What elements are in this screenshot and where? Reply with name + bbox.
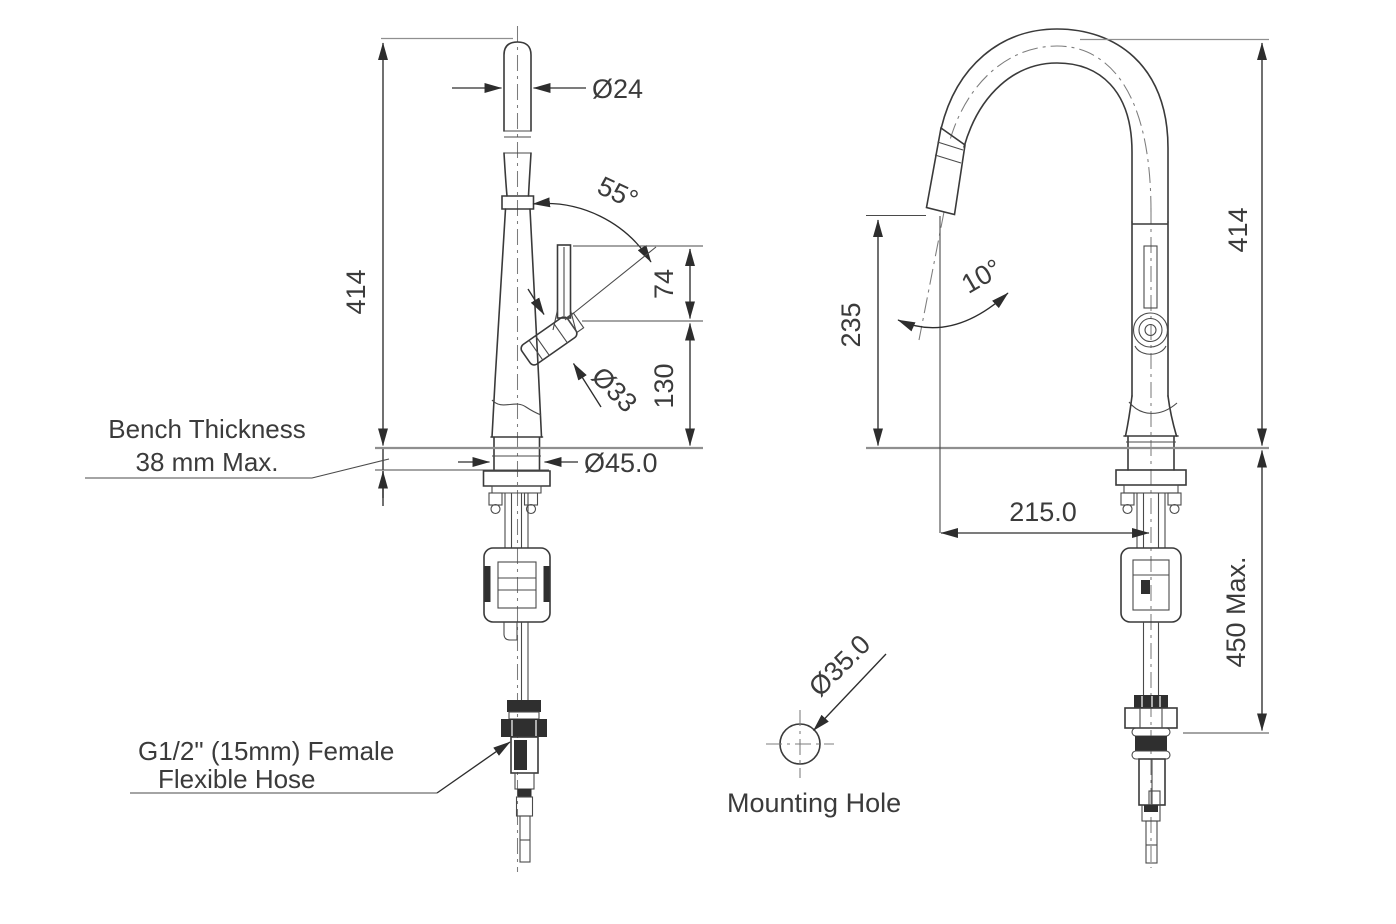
faucet-dimension-drawing: 414 Ø24 55° 74 130 Ø33 Ø45.0 Bench Thick… [0,0,1396,924]
hose-note-leader [437,742,510,793]
gooseneck-outer [941,29,1168,222]
hose-note-line2: Flexible Hose [158,764,316,794]
side-nut-left [1121,493,1134,505]
bench-note-line2: 38 mm Max. [135,447,278,477]
front-bracket [504,622,517,640]
front-hose-band [507,700,541,712]
side-bolt-right [1170,505,1179,514]
spray-angle-label: 10° [956,253,1006,299]
front-connector-band [518,789,532,797]
spray-head-joints [935,142,963,163]
front-hex-nut [501,719,547,737]
pivot-height-label: 130 [649,363,679,408]
base-diameter-label: Ø45.0 [584,448,658,478]
handle-angle-label: 55° [593,171,643,215]
side-view: 414 450 Max. 235 10° 215.0 [836,29,1269,868]
front-mounting-plate [484,471,551,486]
front-view: 414 Ø24 55° 74 130 Ø33 Ø45.0 Bench Thick… [85,26,703,872]
hose-note-line1: G1/2" (15mm) Female [138,736,394,766]
handle-open-position-line [565,247,656,320]
front-hose-ring [509,712,539,719]
front-height-label: 414 [341,269,371,314]
front-connector-tip [517,797,533,816]
front-handle-base [519,311,585,367]
front-weight-tab-left [485,566,491,602]
side-seal [1135,736,1167,751]
front-hose-tube [522,622,529,700]
dim-spray-angle-arc [898,293,1008,328]
front-weight-tab-right [544,566,550,602]
drawing-svg: 414 Ø24 55° 74 130 Ø33 Ø45.0 Bench Thick… [0,0,1396,924]
side-weight-detail [1141,580,1150,594]
spout-reach-label: 215.0 [1009,497,1077,527]
front-bolt-left [491,505,500,514]
front-nut-left [489,493,502,505]
side-hose-band [1134,695,1168,708]
front-spacer [492,486,541,493]
dim-handle-angle-arc [533,203,651,262]
side-height-label: 414 [1223,207,1253,252]
side-gooseneck-centerline [950,46,1151,212]
front-body-seam [492,400,541,415]
gooseneck-inner [964,63,1132,222]
front-base-collar [491,437,543,470]
front-body [492,209,542,437]
mounting-hole-label: Mounting Hole [727,788,901,818]
outlet-height-label: 235 [836,302,866,347]
handle-base-diameter-label: Ø33 [586,361,643,418]
spray-head [927,128,966,215]
mounting-hole-detail: Ø35.0 Mounting Hole [727,629,901,818]
side-bolt-left [1123,505,1132,514]
front-nut-right [525,493,538,505]
front-connector-detail [514,740,527,770]
spout-diameter-label: Ø24 [592,74,643,104]
under-bench-label: 450 Max. [1221,556,1251,667]
handle-rise-label: 74 [649,269,679,299]
side-body [1132,222,1168,396]
side-connector-band [1144,805,1158,812]
bench-note-line1: Bench Thickness [108,414,306,444]
mounting-hole-diameter-label: Ø35.0 [803,629,876,702]
front-outlet-pipe [520,816,530,862]
side-nut-right [1168,493,1181,505]
